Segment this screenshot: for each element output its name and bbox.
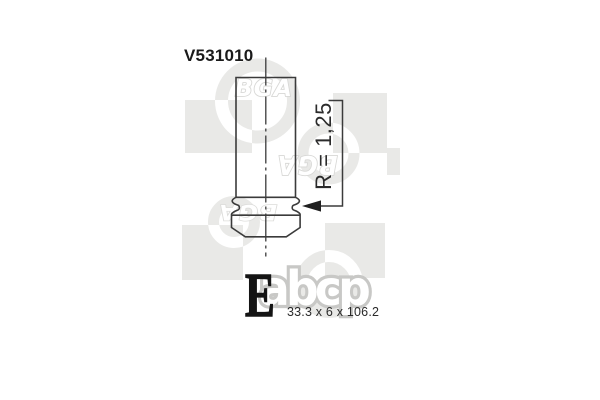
- watermark-square: [387, 148, 400, 175]
- radius-annotation-label: R = 1,25: [312, 100, 336, 192]
- part-number-label: V531010: [184, 46, 253, 66]
- watermark-square: [333, 93, 387, 153]
- bga-watermark-text: BGA: [235, 76, 293, 102]
- bga-watermark-text: BGA: [218, 200, 277, 224]
- valve-technical-drawing: BGA BGA BGA abcp: [0, 0, 600, 400]
- leader-arrowhead-icon: [302, 200, 321, 211]
- dimensions-label: 33.3 x 6 x 106.2: [287, 305, 379, 319]
- product-image: BGA BGA BGA abcp: [0, 0, 600, 400]
- brand-logo-letter: E: [245, 273, 275, 319]
